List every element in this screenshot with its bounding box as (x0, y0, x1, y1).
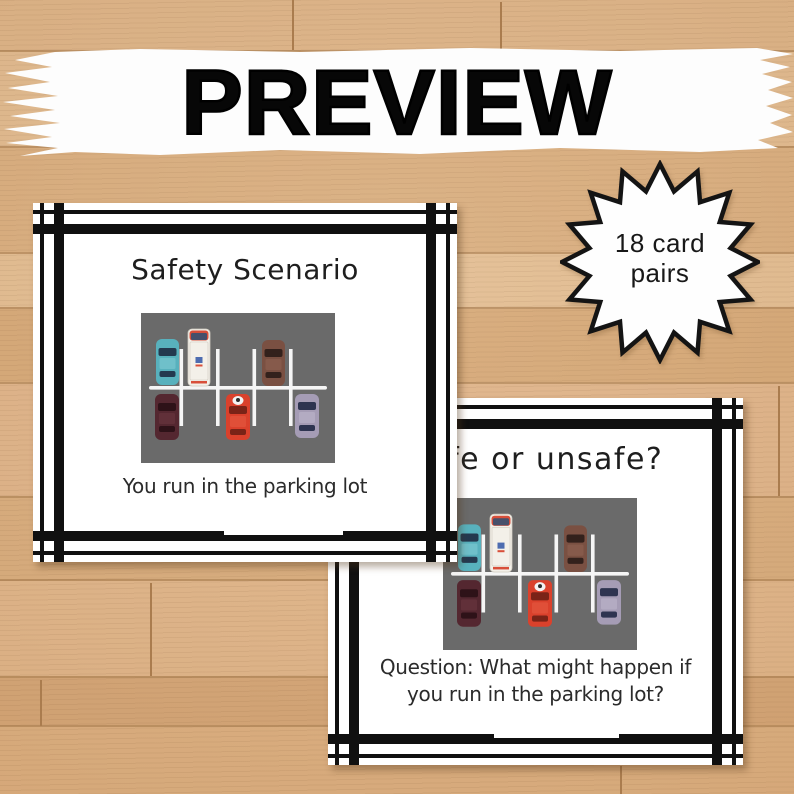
scenario-line-1: You run in the parking lot (33, 473, 457, 500)
question-card-text: Question: What might happen if you run i… (328, 654, 743, 708)
wood-plank-joint (620, 766, 622, 794)
scenario-card-text: You run in the parking lot (33, 473, 457, 500)
card-count-badge: 18 card pairs (560, 160, 760, 364)
listing-preview-image: PREVIEW 18 card pairs Safe or unsafe? Qu… (0, 0, 794, 794)
badge-line-1: 18 card (560, 228, 760, 258)
scenario-card: Safety Scenario You run in the parking l… (33, 203, 457, 562)
card-border-line (33, 551, 457, 555)
question-line-2: you run in the parking lot? (328, 681, 743, 708)
preview-banner-title: PREVIEW (0, 56, 794, 150)
parking-lot-image (443, 498, 637, 650)
parking-lot-image (141, 313, 335, 463)
card-border-line (33, 531, 457, 541)
wood-plank-joint (778, 386, 780, 496)
question-line-1: Question: What might happen if (328, 654, 743, 681)
wood-plank-joint (150, 583, 152, 676)
wood-plank-joint (40, 680, 42, 726)
border-brush-gap (494, 734, 619, 738)
border-brush-gap (224, 531, 343, 535)
badge-line-2: pairs (560, 258, 760, 288)
scenario-card-title: Safety Scenario (33, 253, 457, 286)
card-border-line (33, 224, 457, 234)
badge-text: 18 card pairs (560, 228, 760, 288)
card-border-line (33, 210, 457, 214)
card-border-line (328, 734, 743, 744)
card-border-line (328, 754, 743, 758)
